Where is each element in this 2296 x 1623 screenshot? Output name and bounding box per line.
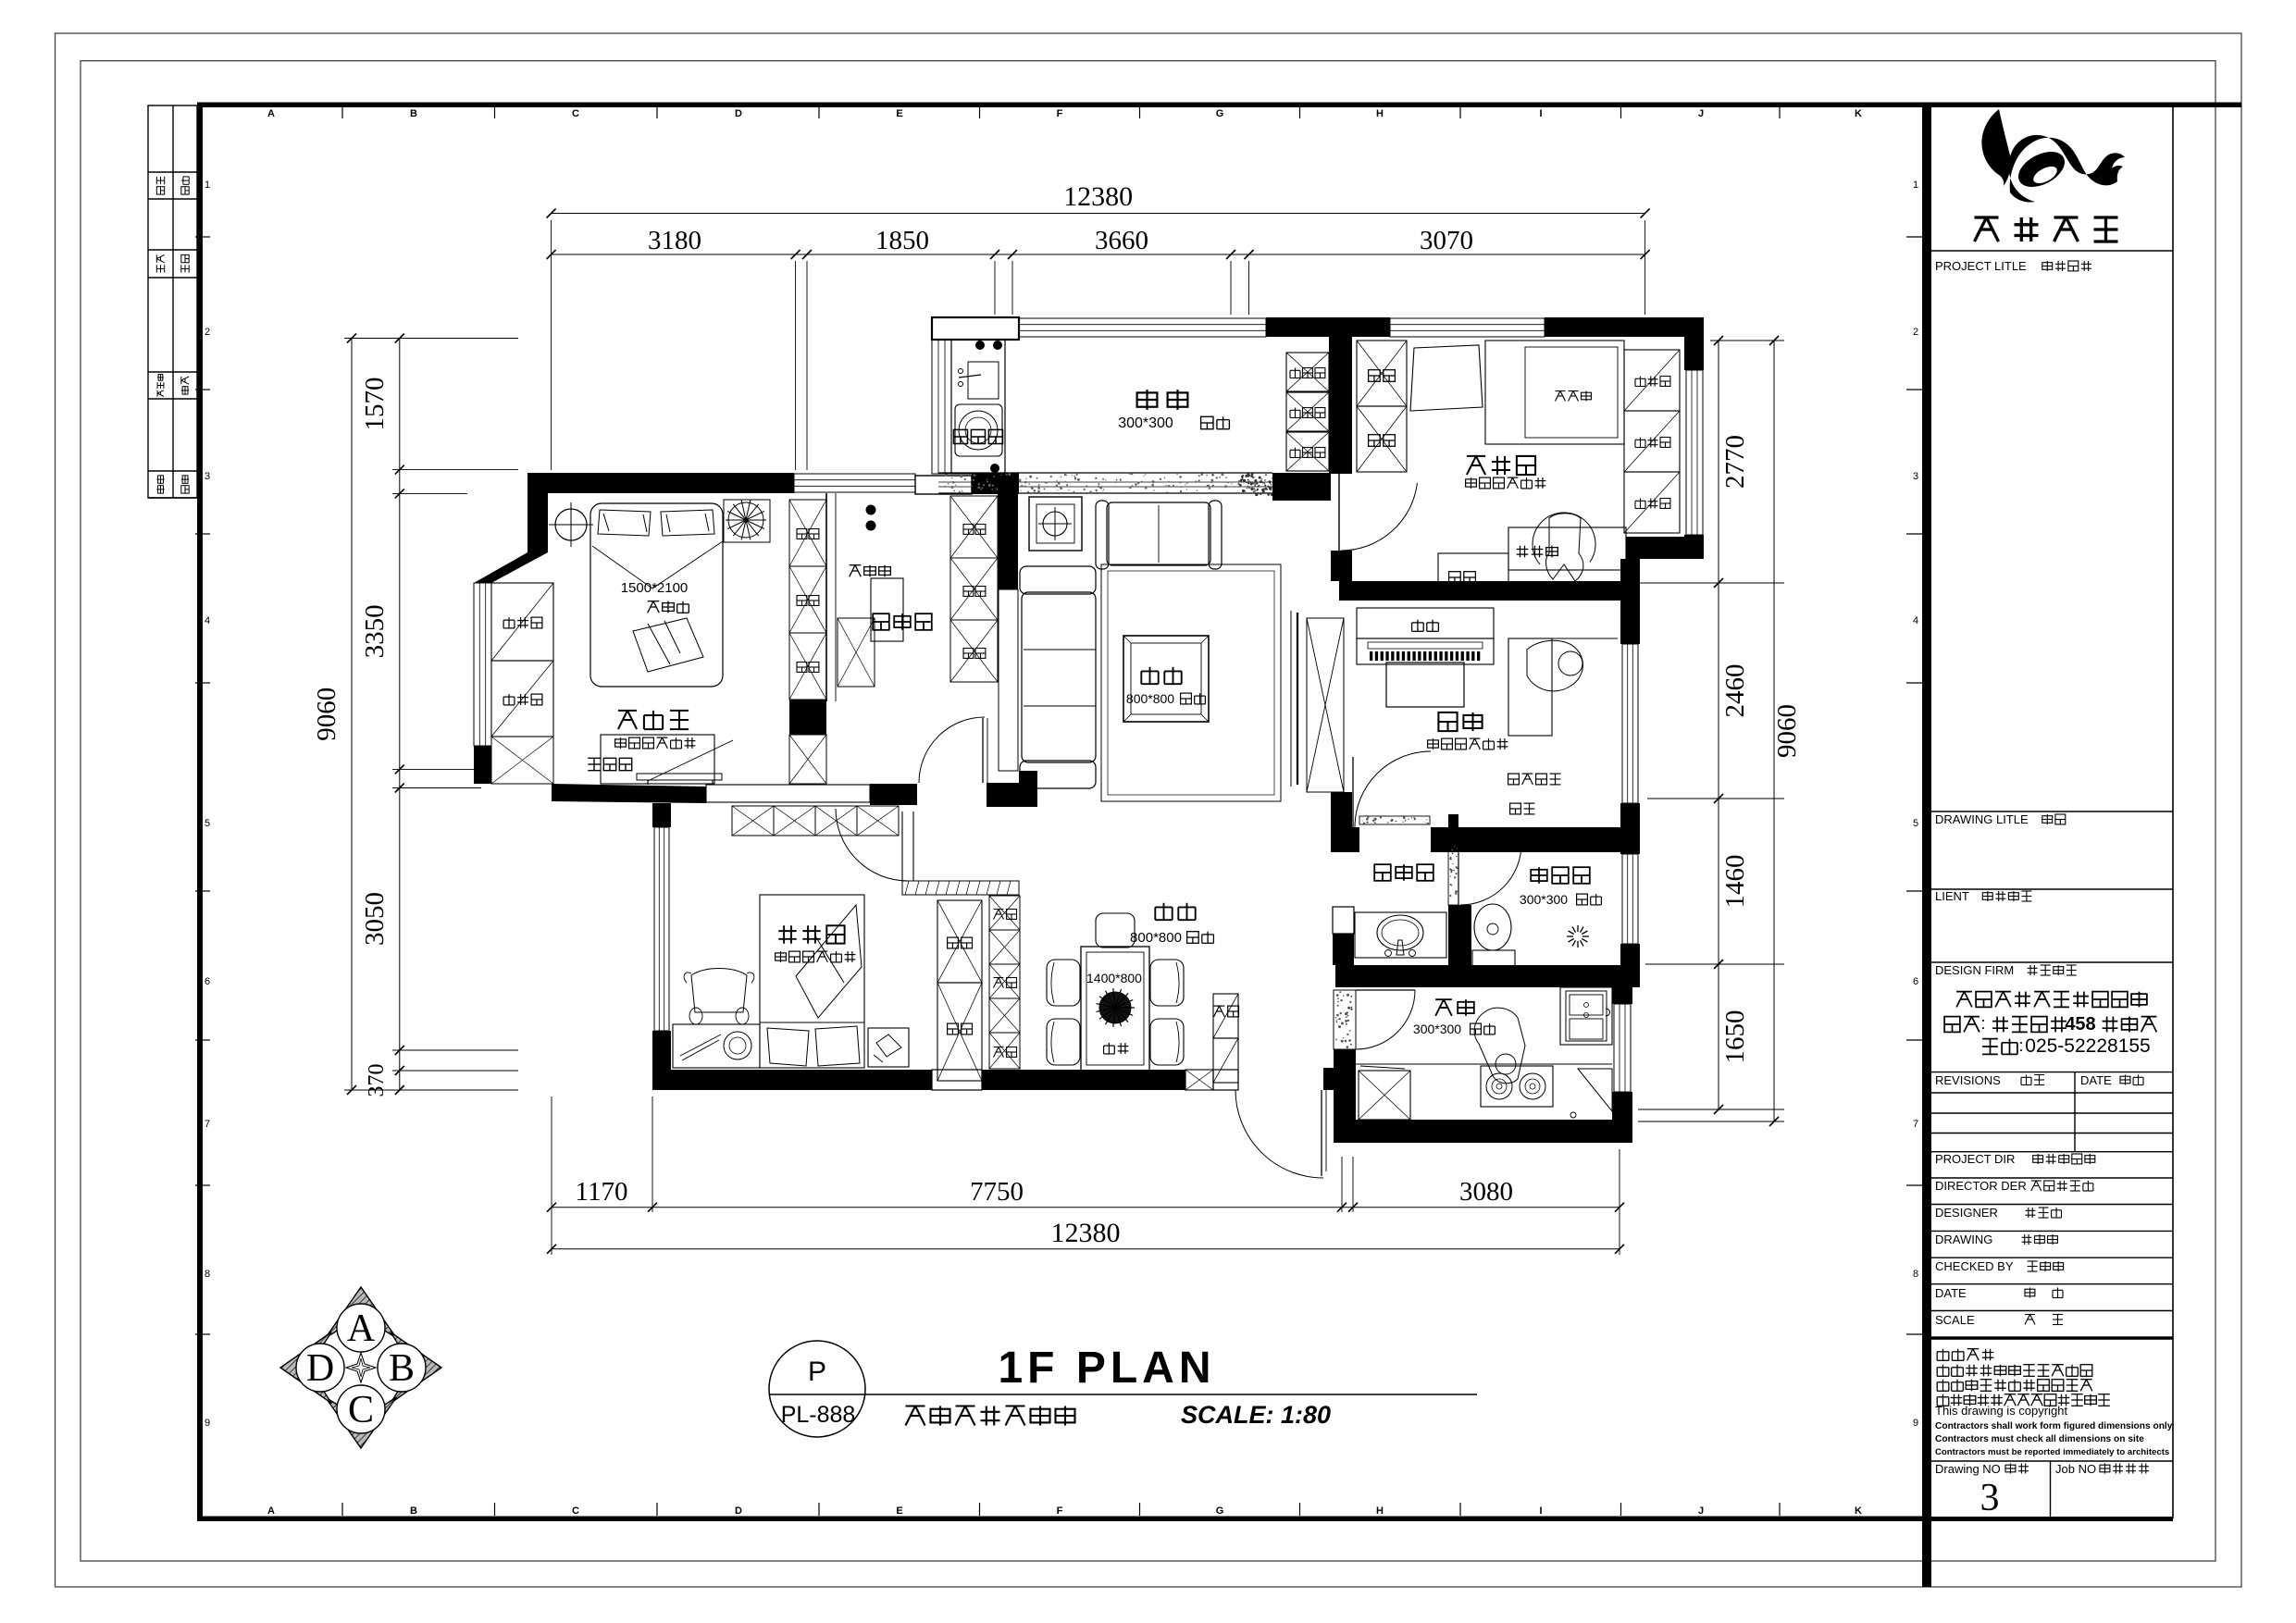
svg-text:P: P <box>808 1357 826 1387</box>
svg-text:H: H <box>1376 108 1384 119</box>
svg-text:PROJECT DIR: PROJECT DIR <box>1935 1152 2015 1166</box>
svg-text:PROJECT LITLE: PROJECT LITLE <box>1935 259 2027 273</box>
svg-text:7750: 7750 <box>970 1177 1024 1207</box>
svg-text:A: A <box>267 1505 275 1517</box>
svg-text:DESIGN FIRM: DESIGN FIRM <box>1935 963 2014 977</box>
svg-text:3: 3 <box>1913 471 1918 482</box>
svg-text:2: 2 <box>205 327 210 338</box>
svg-text:9060: 9060 <box>1772 704 1802 758</box>
svg-text:1400*800: 1400*800 <box>1086 971 1142 985</box>
svg-text:I: I <box>1539 108 1542 119</box>
svg-text:3080: 3080 <box>1459 1177 1513 1207</box>
svg-text:J: J <box>1698 108 1704 119</box>
svg-text:370: 370 <box>365 1064 389 1097</box>
svg-text::: : <box>2018 1036 2023 1055</box>
svg-text:300*300: 300*300 <box>1520 892 1568 907</box>
svg-text:9060: 9060 <box>312 688 341 741</box>
svg-text:This drawing is copyright: This drawing is copyright <box>1935 1404 2067 1418</box>
svg-text:B: B <box>389 1347 415 1390</box>
svg-text:12380: 12380 <box>1051 1218 1121 1248</box>
svg-text:2460: 2460 <box>1720 664 1750 718</box>
svg-text:Contractors shall work form fi: Contractors shall work form figured dime… <box>1935 1421 2173 1431</box>
svg-text:9: 9 <box>1913 1418 1918 1429</box>
svg-text:300*300: 300*300 <box>1413 1022 1461 1036</box>
svg-text:3660: 3660 <box>1095 226 1148 255</box>
svg-text:J: J <box>1698 1505 1704 1517</box>
svg-text:6: 6 <box>205 976 210 987</box>
svg-text:1460: 1460 <box>1720 855 1750 909</box>
svg-text:H: H <box>1376 1505 1384 1517</box>
svg-text:E: E <box>896 1505 902 1517</box>
svg-text:D: D <box>306 1347 334 1390</box>
svg-text:C: C <box>572 1505 579 1517</box>
svg-text:6: 6 <box>1913 976 1918 987</box>
svg-text:Contractors must be reported i: Contractors must be reported immediately… <box>1935 1447 2169 1457</box>
svg-text:1: 1 <box>205 180 210 191</box>
svg-text:C: C <box>572 108 579 119</box>
svg-text:Contractors must check all dim: Contractors must check all dimensions on… <box>1935 1434 2144 1444</box>
svg-text:1650: 1650 <box>1720 1010 1750 1064</box>
svg-text:1F PLAN: 1F PLAN <box>998 1344 1215 1393</box>
svg-text:8: 8 <box>205 1269 210 1280</box>
svg-text:1570: 1570 <box>360 378 390 431</box>
svg-text:2: 2 <box>1913 327 1918 338</box>
svg-text:DRAWING: DRAWING <box>1935 1233 1992 1246</box>
svg-text:DATE: DATE <box>1935 1286 1967 1300</box>
svg-text:F: F <box>1057 1505 1063 1517</box>
svg-text::: : <box>1980 1014 1985 1033</box>
svg-text:A: A <box>347 1307 376 1350</box>
svg-text:C: C <box>348 1389 374 1431</box>
svg-text:3180: 3180 <box>648 226 701 255</box>
svg-text:1500*2100: 1500*2100 <box>621 580 689 596</box>
svg-text:800*800: 800*800 <box>1130 930 1182 946</box>
svg-text:K: K <box>1855 1505 1862 1517</box>
svg-text:E: E <box>896 108 902 119</box>
svg-text:2770: 2770 <box>1720 435 1750 489</box>
svg-text:DIRECTOR DER: DIRECTOR DER <box>1935 1179 2027 1193</box>
svg-text:D: D <box>735 108 742 119</box>
svg-text:7: 7 <box>205 1119 210 1130</box>
svg-text:F: F <box>1057 108 1063 119</box>
svg-text:I: I <box>1539 1505 1542 1517</box>
svg-text:8: 8 <box>1913 1269 1918 1280</box>
svg-text:1850: 1850 <box>875 226 929 255</box>
svg-text:4: 4 <box>1913 615 1918 626</box>
svg-text:3070: 3070 <box>1420 226 1473 255</box>
svg-text:SCALE: SCALE <box>1935 1313 1975 1327</box>
svg-text:1: 1 <box>1913 180 1918 191</box>
svg-text:G: G <box>1216 1505 1224 1517</box>
svg-text:4: 4 <box>205 615 210 626</box>
svg-text:D: D <box>735 1505 742 1517</box>
svg-text:Job NO: Job NO <box>2055 1462 2096 1476</box>
svg-text:LIENT: LIENT <box>1935 889 1969 903</box>
svg-text:1170: 1170 <box>576 1177 628 1207</box>
svg-text:3050: 3050 <box>360 892 390 946</box>
svg-text:Drawing NO: Drawing NO <box>1935 1462 2001 1476</box>
svg-text:SCALE: 1:80: SCALE: 1:80 <box>1181 1401 1331 1429</box>
svg-text:12380: 12380 <box>1063 181 1133 212</box>
svg-text:300*300: 300*300 <box>1118 415 1173 431</box>
svg-text:REVISIONS: REVISIONS <box>1935 1073 2001 1087</box>
svg-text:CHECKED BY: CHECKED BY <box>1935 1259 2014 1273</box>
svg-text:A: A <box>267 108 275 119</box>
svg-text:DESIGNER: DESIGNER <box>1935 1206 1998 1220</box>
svg-text:3350: 3350 <box>360 604 390 658</box>
svg-text:3: 3 <box>1980 1477 2000 1519</box>
svg-text:800*800: 800*800 <box>1126 691 1174 706</box>
svg-text:K: K <box>1855 108 1862 119</box>
svg-text:DRAWING LITLE: DRAWING LITLE <box>1935 812 2029 826</box>
svg-text:5: 5 <box>1913 818 1918 829</box>
svg-text:3: 3 <box>205 471 210 482</box>
svg-text:PL-888: PL-888 <box>781 1402 856 1428</box>
svg-text:9: 9 <box>205 1418 210 1429</box>
svg-text:458: 458 <box>2065 1014 2095 1035</box>
svg-text:G: G <box>1216 108 1224 119</box>
svg-text:B: B <box>410 108 417 119</box>
svg-text:5: 5 <box>205 818 210 829</box>
svg-text:DATE: DATE <box>2080 1073 2112 1087</box>
svg-text:025-52228155: 025-52228155 <box>2025 1035 2150 1057</box>
svg-text:7: 7 <box>1913 1119 1918 1130</box>
svg-text:B: B <box>410 1505 417 1517</box>
